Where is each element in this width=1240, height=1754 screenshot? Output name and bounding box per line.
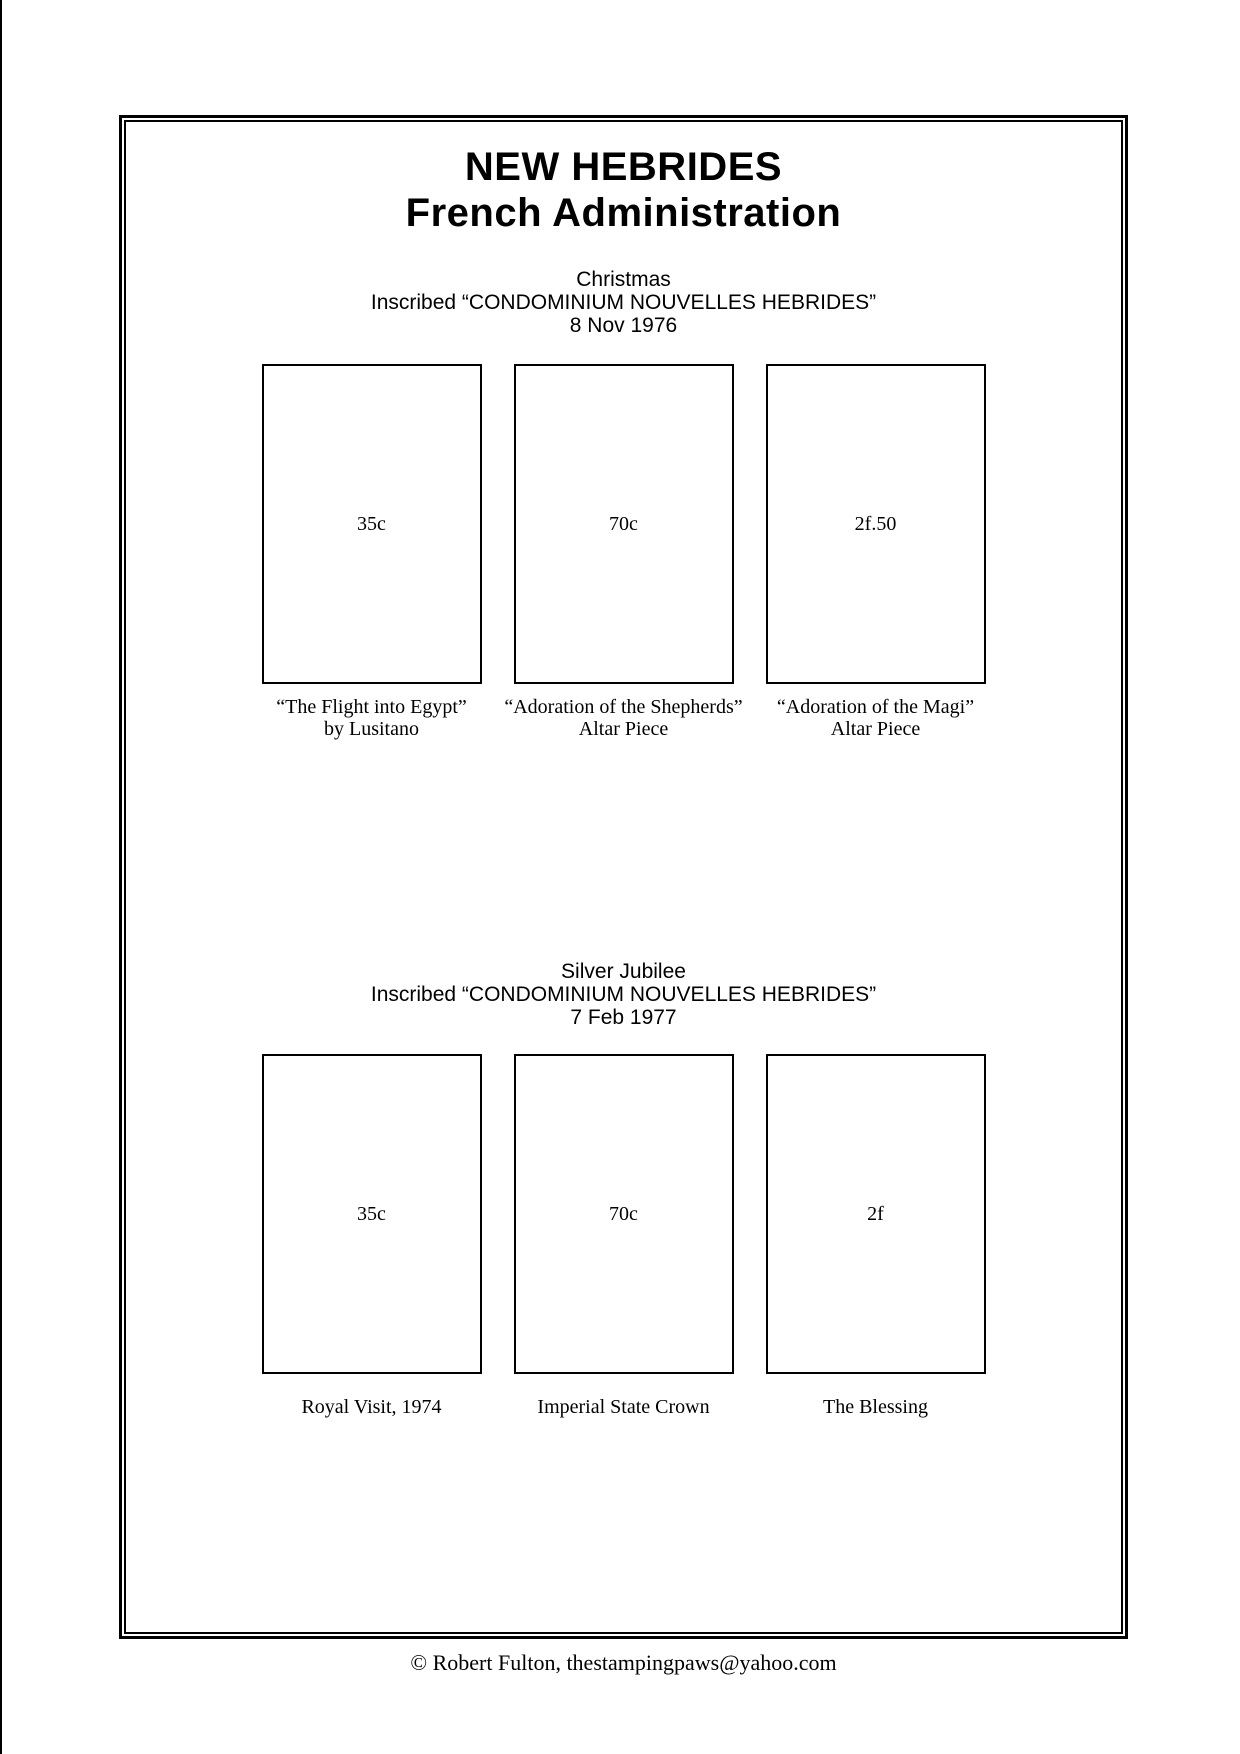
stamp-caption: “Adoration of the Magi” Altar Piece [726, 696, 1026, 740]
stamp-caption-line1: “Adoration of the Magi” [726, 696, 1026, 718]
stamp-column: 35c Royal Visit, 1974 [262, 1054, 482, 1418]
stamp-column: 35c “The Flight into Egypt” by Lusitano [262, 364, 482, 740]
stamp-value: 35c [357, 1203, 386, 1226]
stamp-caption-line1: The Blessing [726, 1396, 1026, 1418]
stamp-column: 2f The Blessing [766, 1054, 986, 1418]
section-heading-christmas: Christmas Inscribed “CONDOMINIUM NOUVELL… [119, 268, 1128, 337]
stamp-column: 70c “Adoration of the Shepherds” Altar P… [514, 364, 734, 740]
page-title-line2: French Administration [119, 190, 1128, 236]
stamp-column: 2f.50 “Adoration of the Magi” Altar Piec… [766, 364, 986, 740]
stamp-box: 35c [262, 364, 482, 684]
page-title-line1: NEW HEBRIDES [119, 144, 1128, 190]
stamp-row-christmas: 35c “The Flight into Egypt” by Lusitano … [119, 364, 1128, 740]
section-title: Christmas [119, 268, 1128, 291]
stamp-column: 70c Imperial State Crown [514, 1054, 734, 1418]
stamp-value: 35c [357, 513, 386, 536]
section-date: 7 Feb 1977 [119, 1006, 1128, 1029]
section-date: 8 Nov 1976 [119, 314, 1128, 337]
section-inscription: Inscribed “CONDOMINIUM NOUVELLES HEBRIDE… [119, 983, 1128, 1006]
copyright-footer: © Robert Fulton, thestampingpaws@yahoo.c… [119, 1650, 1128, 1676]
album-page: NEW HEBRIDES French Administration Chris… [0, 0, 1240, 1754]
stamp-box: 70c [514, 1054, 734, 1374]
stamp-box: 2f [766, 1054, 986, 1374]
section-inscription: Inscribed “CONDOMINIUM NOUVELLES HEBRIDE… [119, 291, 1128, 314]
stamp-value: 70c [609, 1203, 638, 1226]
stamp-row-silver-jubilee: 35c Royal Visit, 1974 70c Imperial State… [119, 1054, 1128, 1418]
stamp-box: 35c [262, 1054, 482, 1374]
stamp-caption: The Blessing [726, 1396, 1026, 1418]
section-heading-silver-jubilee: Silver Jubilee Inscribed “CONDOMINIUM NO… [119, 960, 1128, 1029]
page-title: NEW HEBRIDES French Administration [119, 144, 1128, 236]
section-title: Silver Jubilee [119, 960, 1128, 983]
stamp-value: 70c [609, 513, 638, 536]
stamp-box: 2f.50 [766, 364, 986, 684]
stamp-box: 70c [514, 364, 734, 684]
stamp-value: 2f.50 [855, 513, 897, 536]
stamp-value: 2f [867, 1203, 884, 1226]
stamp-caption-line2: Altar Piece [726, 718, 1026, 740]
